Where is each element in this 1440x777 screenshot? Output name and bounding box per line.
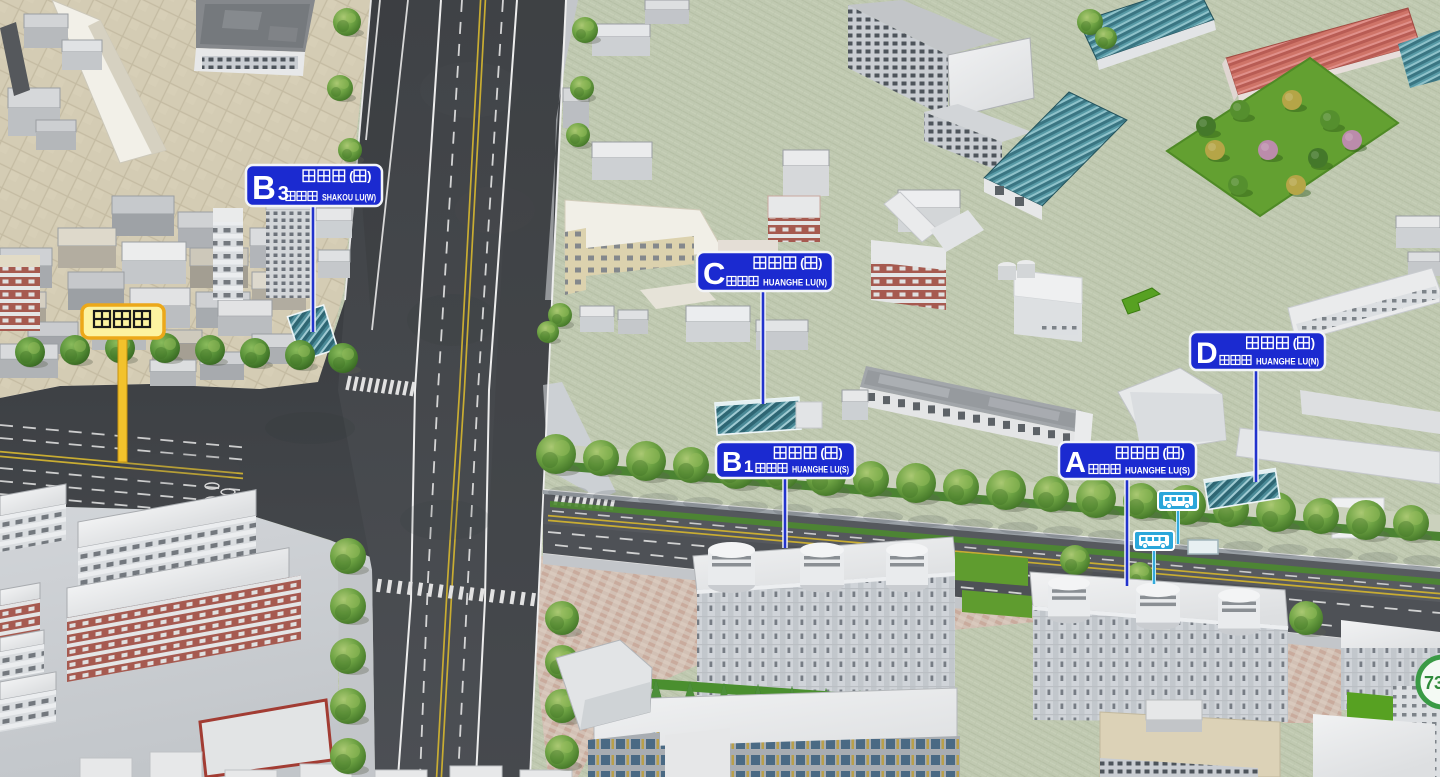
svg-text:HUANGHE LU(N): HUANGHE LU(N): [1256, 357, 1319, 368]
svg-text:A: A: [1065, 447, 1086, 479]
svg-text:): ): [838, 446, 842, 461]
svg-text:HUANGHE LU(S): HUANGHE LU(S): [1125, 466, 1190, 477]
svg-text:B: B: [722, 446, 742, 477]
svg-text:C: C: [703, 256, 725, 291]
svg-text:(: (: [1293, 336, 1298, 351]
svg-text:(: (: [820, 446, 825, 461]
svg-text:3: 3: [278, 183, 289, 205]
svg-text:HUANGHE LU(S): HUANGHE LU(S): [792, 465, 849, 476]
svg-text:): ): [818, 256, 822, 271]
svg-text:HUANGHE LU(N): HUANGHE LU(N): [763, 278, 827, 289]
svg-text:1: 1: [744, 457, 753, 476]
svg-text:73: 73: [1424, 673, 1440, 693]
svg-text:): ): [1181, 446, 1185, 461]
svg-text:(: (: [800, 256, 805, 271]
svg-text:D: D: [1196, 337, 1218, 370]
svg-text:B: B: [252, 169, 276, 206]
svg-text:(: (: [1163, 446, 1168, 461]
svg-text:(: (: [349, 169, 354, 184]
svg-text:): ): [367, 169, 371, 184]
svg-text:SHAKOU LU(W): SHAKOU LU(W): [322, 193, 376, 204]
svg-text:): ): [1311, 336, 1315, 351]
